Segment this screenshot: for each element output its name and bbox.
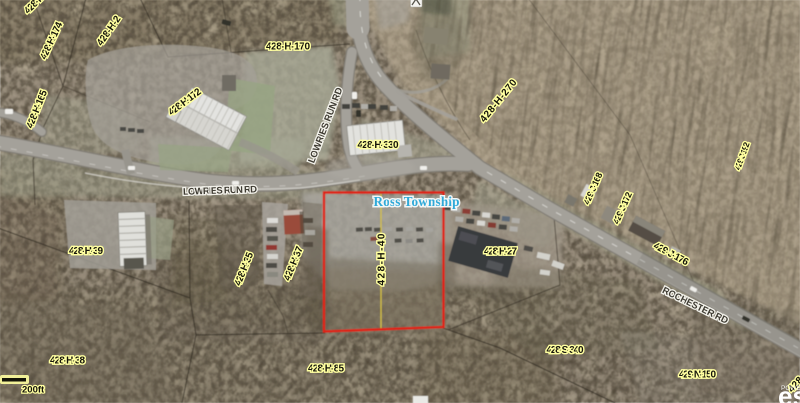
svg-text:Ross Township: Ross Township: [374, 194, 460, 209]
svg-text:429-N-150: 429-N-150: [679, 370, 716, 381]
svg-text:esri: esri: [778, 381, 800, 403]
svg-text:428-H-39: 428-H-39: [69, 246, 103, 257]
svg-text:428-H-38: 428-H-38: [50, 356, 85, 367]
svg-text:428-H-170: 428-H-170: [266, 42, 310, 53]
svg-text:428-H-27: 428-H-27: [484, 247, 517, 258]
svg-text:428-H-40: 428-H-40: [377, 233, 388, 285]
svg-text:200ft: 200ft: [22, 385, 45, 396]
svg-text:428-S-340: 428-S-340: [547, 345, 584, 356]
svg-text:428-H-330: 428-H-330: [358, 140, 399, 151]
svg-text:428-H-85: 428-H-85: [308, 364, 344, 375]
